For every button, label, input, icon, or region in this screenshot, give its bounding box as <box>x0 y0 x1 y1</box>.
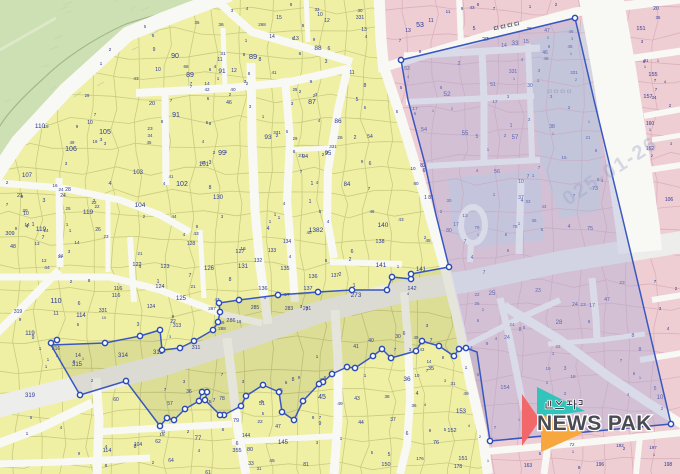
svg-text:110: 110 <box>50 298 61 305</box>
svg-text:68: 68 <box>183 64 189 69</box>
svg-text:106: 106 <box>665 197 674 203</box>
svg-text:35: 35 <box>428 366 434 372</box>
svg-text:4: 4 <box>109 181 112 187</box>
svg-text:106: 106 <box>65 146 77 153</box>
svg-text:36: 36 <box>218 22 224 28</box>
svg-text:43: 43 <box>398 217 404 222</box>
svg-text:38: 38 <box>384 394 390 399</box>
svg-text:15: 15 <box>276 15 282 21</box>
svg-text:5: 5 <box>261 399 264 405</box>
svg-text:141: 141 <box>376 262 387 269</box>
svg-text:9: 9 <box>19 317 22 322</box>
svg-text:37: 37 <box>390 417 396 423</box>
svg-text:128: 128 <box>187 241 196 247</box>
svg-text:5: 5 <box>206 120 209 125</box>
svg-text:7: 7 <box>6 202 9 207</box>
svg-text:13: 13 <box>405 28 411 34</box>
svg-text:12: 12 <box>231 68 237 74</box>
svg-text:198: 198 <box>664 462 673 468</box>
svg-text:331: 331 <box>329 144 337 149</box>
svg-text:107: 107 <box>22 173 33 179</box>
svg-text:126: 126 <box>204 266 215 272</box>
svg-text:11: 11 <box>217 57 222 63</box>
svg-text:8: 8 <box>209 185 212 191</box>
svg-text:89: 89 <box>186 72 194 79</box>
svg-text:43: 43 <box>469 5 475 10</box>
svg-text:4: 4 <box>214 64 217 70</box>
svg-text:151: 151 <box>636 26 645 32</box>
svg-text:13: 13 <box>34 241 40 246</box>
svg-text:31: 31 <box>450 381 456 386</box>
svg-text:2: 2 <box>213 150 216 156</box>
svg-text:10: 10 <box>155 67 161 73</box>
svg-text:24: 24 <box>58 187 64 192</box>
svg-text:1: 1 <box>364 373 367 379</box>
svg-text:23: 23 <box>103 234 109 239</box>
svg-text:23: 23 <box>147 126 153 131</box>
svg-text:80: 80 <box>247 447 253 453</box>
svg-text:7: 7 <box>654 279 657 285</box>
svg-text:22: 22 <box>170 319 176 325</box>
svg-text:8: 8 <box>293 149 296 154</box>
svg-text:4: 4 <box>139 264 142 269</box>
svg-text:NEWS PAK: NEWS PAK <box>537 412 652 435</box>
svg-text:2: 2 <box>70 279 73 284</box>
svg-text:7: 7 <box>300 169 303 174</box>
svg-text:22: 22 <box>257 419 263 425</box>
svg-text:31: 31 <box>220 51 226 57</box>
svg-text:3: 3 <box>100 137 103 143</box>
svg-text:7: 7 <box>654 78 657 83</box>
svg-text:3: 3 <box>325 59 328 65</box>
svg-text:135: 135 <box>280 266 289 272</box>
svg-text:54: 54 <box>367 134 373 140</box>
svg-text:84: 84 <box>344 182 351 188</box>
svg-text:10: 10 <box>87 120 93 126</box>
svg-text:5: 5 <box>473 26 476 32</box>
svg-text:5: 5 <box>356 97 359 103</box>
svg-text:90: 90 <box>171 53 179 60</box>
svg-text:152: 152 <box>447 428 456 434</box>
svg-text:16: 16 <box>52 183 58 188</box>
svg-text:21: 21 <box>190 284 196 289</box>
svg-text:3: 3 <box>291 101 294 106</box>
svg-text:9: 9 <box>319 421 322 427</box>
svg-text:9: 9 <box>578 465 581 470</box>
svg-text:9: 9 <box>153 47 156 53</box>
svg-text:89: 89 <box>249 52 257 61</box>
svg-text:14: 14 <box>269 34 275 40</box>
svg-text:1: 1 <box>39 346 42 351</box>
svg-text:114: 114 <box>76 313 86 319</box>
svg-text:331: 331 <box>99 308 108 314</box>
svg-text:40: 40 <box>306 230 312 235</box>
svg-text:6: 6 <box>369 161 372 167</box>
svg-text:1: 1 <box>465 365 468 371</box>
svg-text:137: 137 <box>303 286 312 292</box>
svg-text:12: 12 <box>324 18 330 24</box>
svg-text:93: 93 <box>264 134 272 141</box>
svg-text:47: 47 <box>275 424 281 430</box>
svg-text:119: 119 <box>83 209 94 216</box>
svg-text:104: 104 <box>135 202 146 209</box>
svg-text:91: 91 <box>218 68 226 75</box>
svg-text:1: 1 <box>157 279 160 285</box>
svg-text:4: 4 <box>267 226 270 232</box>
svg-text:9: 9 <box>21 194 24 200</box>
svg-text:144: 144 <box>242 433 251 439</box>
svg-text:1: 1 <box>100 61 103 67</box>
svg-text:331: 331 <box>356 15 365 21</box>
svg-text:6: 6 <box>423 168 426 174</box>
svg-text:33: 33 <box>248 461 254 467</box>
svg-text:196: 196 <box>596 462 605 468</box>
svg-text:355: 355 <box>232 448 241 454</box>
svg-text:125: 125 <box>176 296 187 302</box>
svg-text:31: 31 <box>644 58 649 63</box>
svg-text:9: 9 <box>32 335 35 341</box>
svg-text:61: 61 <box>205 470 211 474</box>
svg-text:2: 2 <box>6 180 9 185</box>
svg-text:1: 1 <box>32 222 35 228</box>
svg-text:24: 24 <box>60 193 66 199</box>
svg-text:6: 6 <box>406 431 409 437</box>
svg-text:9: 9 <box>419 49 422 54</box>
svg-text:268: 268 <box>258 22 266 27</box>
svg-text:25: 25 <box>65 206 71 211</box>
svg-text:10: 10 <box>410 166 416 171</box>
svg-text:45: 45 <box>425 238 431 243</box>
svg-text:197: 197 <box>649 445 657 450</box>
svg-text:10: 10 <box>102 315 107 320</box>
svg-text:6: 6 <box>78 301 81 307</box>
svg-text:43: 43 <box>354 396 360 402</box>
svg-text:116: 116 <box>112 293 121 299</box>
svg-text:1: 1 <box>69 228 72 233</box>
svg-text:36: 36 <box>403 376 411 383</box>
svg-text:44: 44 <box>172 214 177 219</box>
svg-text:34: 34 <box>651 95 657 100</box>
svg-text:131: 131 <box>238 264 249 270</box>
svg-text:2: 2 <box>339 272 342 278</box>
svg-text:45: 45 <box>147 140 152 145</box>
svg-text:6: 6 <box>299 51 302 57</box>
svg-text:3: 3 <box>315 92 318 97</box>
svg-text:14: 14 <box>74 240 80 245</box>
svg-text:134: 134 <box>283 239 292 245</box>
svg-text:30: 30 <box>357 8 363 13</box>
svg-text:9: 9 <box>312 415 315 420</box>
svg-text:80: 80 <box>413 181 419 186</box>
svg-text:60: 60 <box>113 397 119 403</box>
svg-text:151: 151 <box>458 456 467 462</box>
svg-text:2: 2 <box>354 135 357 141</box>
svg-text:1: 1 <box>309 199 312 205</box>
svg-text:145: 145 <box>278 440 289 446</box>
svg-text:21: 21 <box>138 251 143 256</box>
svg-text:29: 29 <box>293 136 298 141</box>
svg-text:46: 46 <box>370 209 375 214</box>
svg-text:36: 36 <box>411 403 417 408</box>
svg-text:319: 319 <box>14 309 23 315</box>
svg-text:20: 20 <box>22 208 28 213</box>
svg-text:8: 8 <box>259 57 262 63</box>
svg-text:49: 49 <box>70 140 75 145</box>
svg-text:3: 3 <box>104 141 107 146</box>
svg-text:41: 41 <box>271 70 277 75</box>
svg-text:45: 45 <box>269 458 275 464</box>
svg-text:138: 138 <box>375 239 384 245</box>
svg-text:7: 7 <box>42 235 45 241</box>
svg-text:11: 11 <box>446 9 451 14</box>
svg-text:35: 35 <box>195 20 200 25</box>
svg-text:26: 26 <box>95 227 101 233</box>
svg-text:1: 1 <box>278 215 281 221</box>
svg-text:77: 77 <box>195 436 202 442</box>
svg-text:3: 3 <box>209 160 212 166</box>
svg-text:7: 7 <box>189 273 192 279</box>
svg-text:136: 136 <box>308 274 317 280</box>
svg-text:41: 41 <box>169 174 174 179</box>
svg-text:64: 64 <box>168 458 174 464</box>
svg-text:176: 176 <box>416 456 424 461</box>
svg-text:26: 26 <box>337 135 343 140</box>
svg-text:35: 35 <box>656 15 661 20</box>
svg-text:8: 8 <box>88 278 91 283</box>
svg-text:33: 33 <box>315 7 320 12</box>
svg-text:4: 4 <box>327 219 330 224</box>
svg-text:28: 28 <box>65 187 71 193</box>
svg-text:91: 91 <box>172 112 180 119</box>
svg-text:5: 5 <box>319 209 322 215</box>
svg-text:46: 46 <box>226 100 232 106</box>
svg-text:8: 8 <box>134 444 137 450</box>
svg-text:140: 140 <box>378 222 389 229</box>
svg-text:3: 3 <box>244 79 247 85</box>
svg-text:25: 25 <box>293 87 298 92</box>
svg-text:81: 81 <box>303 462 309 468</box>
svg-text:19: 19 <box>43 124 49 129</box>
svg-text:5: 5 <box>152 33 155 38</box>
svg-text:20: 20 <box>149 101 155 107</box>
svg-text:287: 287 <box>208 306 216 311</box>
svg-text:31: 31 <box>257 466 262 471</box>
svg-text:19: 19 <box>93 139 98 144</box>
svg-text:10: 10 <box>317 12 323 18</box>
svg-text:2: 2 <box>276 133 279 139</box>
svg-text:102: 102 <box>176 181 188 188</box>
svg-text:130: 130 <box>213 195 224 201</box>
svg-text:124: 124 <box>147 304 156 310</box>
svg-text:7: 7 <box>368 186 371 191</box>
svg-text:8: 8 <box>364 83 367 89</box>
svg-text:14: 14 <box>43 228 49 233</box>
svg-text:103: 103 <box>133 170 144 176</box>
svg-text:150: 150 <box>381 462 390 468</box>
svg-text:1: 1 <box>26 431 29 437</box>
svg-text:11: 11 <box>349 70 354 76</box>
svg-text:49: 49 <box>463 391 469 397</box>
svg-text:1: 1 <box>66 222 69 227</box>
svg-text:11: 11 <box>428 18 433 24</box>
svg-text:6: 6 <box>236 441 239 447</box>
svg-text:88: 88 <box>314 45 322 52</box>
svg-text:6: 6 <box>351 249 354 255</box>
svg-text:13: 13 <box>361 27 367 33</box>
svg-text:62: 62 <box>155 439 161 445</box>
svg-text:12: 12 <box>41 258 47 263</box>
svg-text:11: 11 <box>53 311 58 317</box>
svg-text:49: 49 <box>337 401 343 407</box>
svg-text:3: 3 <box>137 322 140 328</box>
svg-text:3: 3 <box>68 249 71 254</box>
svg-text:9: 9 <box>310 79 313 85</box>
svg-text:86: 86 <box>334 118 342 125</box>
svg-text:3: 3 <box>43 198 46 204</box>
svg-text:11: 11 <box>58 254 63 259</box>
svg-text:76: 76 <box>433 440 439 446</box>
svg-text:105: 105 <box>99 129 111 136</box>
svg-text:4: 4 <box>26 224 29 230</box>
svg-text:44: 44 <box>44 265 50 271</box>
svg-text:2: 2 <box>623 446 626 451</box>
svg-text:2: 2 <box>109 47 112 53</box>
svg-text:10: 10 <box>415 373 420 378</box>
svg-text:11: 11 <box>161 429 166 434</box>
svg-text:5: 5 <box>388 452 391 458</box>
svg-text:34: 34 <box>148 133 153 138</box>
svg-text:309: 309 <box>5 231 14 237</box>
svg-text:6: 6 <box>325 258 328 263</box>
svg-text:72: 72 <box>569 442 575 447</box>
svg-text:133: 133 <box>268 248 277 254</box>
svg-text:44: 44 <box>358 420 364 426</box>
svg-text:7: 7 <box>426 368 429 373</box>
svg-text:136: 136 <box>258 286 267 292</box>
svg-text:6: 6 <box>222 427 225 433</box>
svg-text:45: 45 <box>318 394 326 401</box>
svg-text:8: 8 <box>229 277 232 283</box>
svg-text:6: 6 <box>328 46 331 52</box>
svg-text:132: 132 <box>254 258 263 264</box>
svg-text:43: 43 <box>193 231 199 237</box>
svg-text:20: 20 <box>653 6 659 12</box>
svg-text:29: 29 <box>85 93 90 98</box>
svg-text:2: 2 <box>349 257 352 263</box>
svg-text:153: 153 <box>456 409 467 415</box>
svg-text:163: 163 <box>524 463 533 469</box>
svg-text:116: 116 <box>114 286 123 292</box>
svg-text:21: 21 <box>298 153 304 159</box>
svg-text:43: 43 <box>200 160 206 165</box>
svg-text:2: 2 <box>322 152 325 157</box>
svg-text:178: 178 <box>454 464 463 470</box>
svg-text:16: 16 <box>240 246 246 252</box>
svg-text:87: 87 <box>308 99 316 106</box>
svg-text:79: 79 <box>233 418 239 424</box>
svg-text:40: 40 <box>230 87 236 92</box>
svg-text:14: 14 <box>427 359 432 364</box>
svg-text:4: 4 <box>105 444 108 450</box>
svg-text:8: 8 <box>105 463 108 469</box>
svg-text:319: 319 <box>25 393 36 399</box>
svg-text:4: 4 <box>183 232 186 238</box>
svg-text:4: 4 <box>416 391 419 397</box>
svg-text:2: 2 <box>187 429 190 434</box>
svg-text:1: 1 <box>311 181 314 187</box>
svg-text:123: 123 <box>160 264 169 270</box>
svg-text:48: 48 <box>10 244 16 250</box>
svg-text:42: 42 <box>204 87 210 92</box>
svg-text:43: 43 <box>133 76 139 81</box>
svg-text:53: 53 <box>416 22 424 29</box>
svg-text:43: 43 <box>420 347 425 352</box>
